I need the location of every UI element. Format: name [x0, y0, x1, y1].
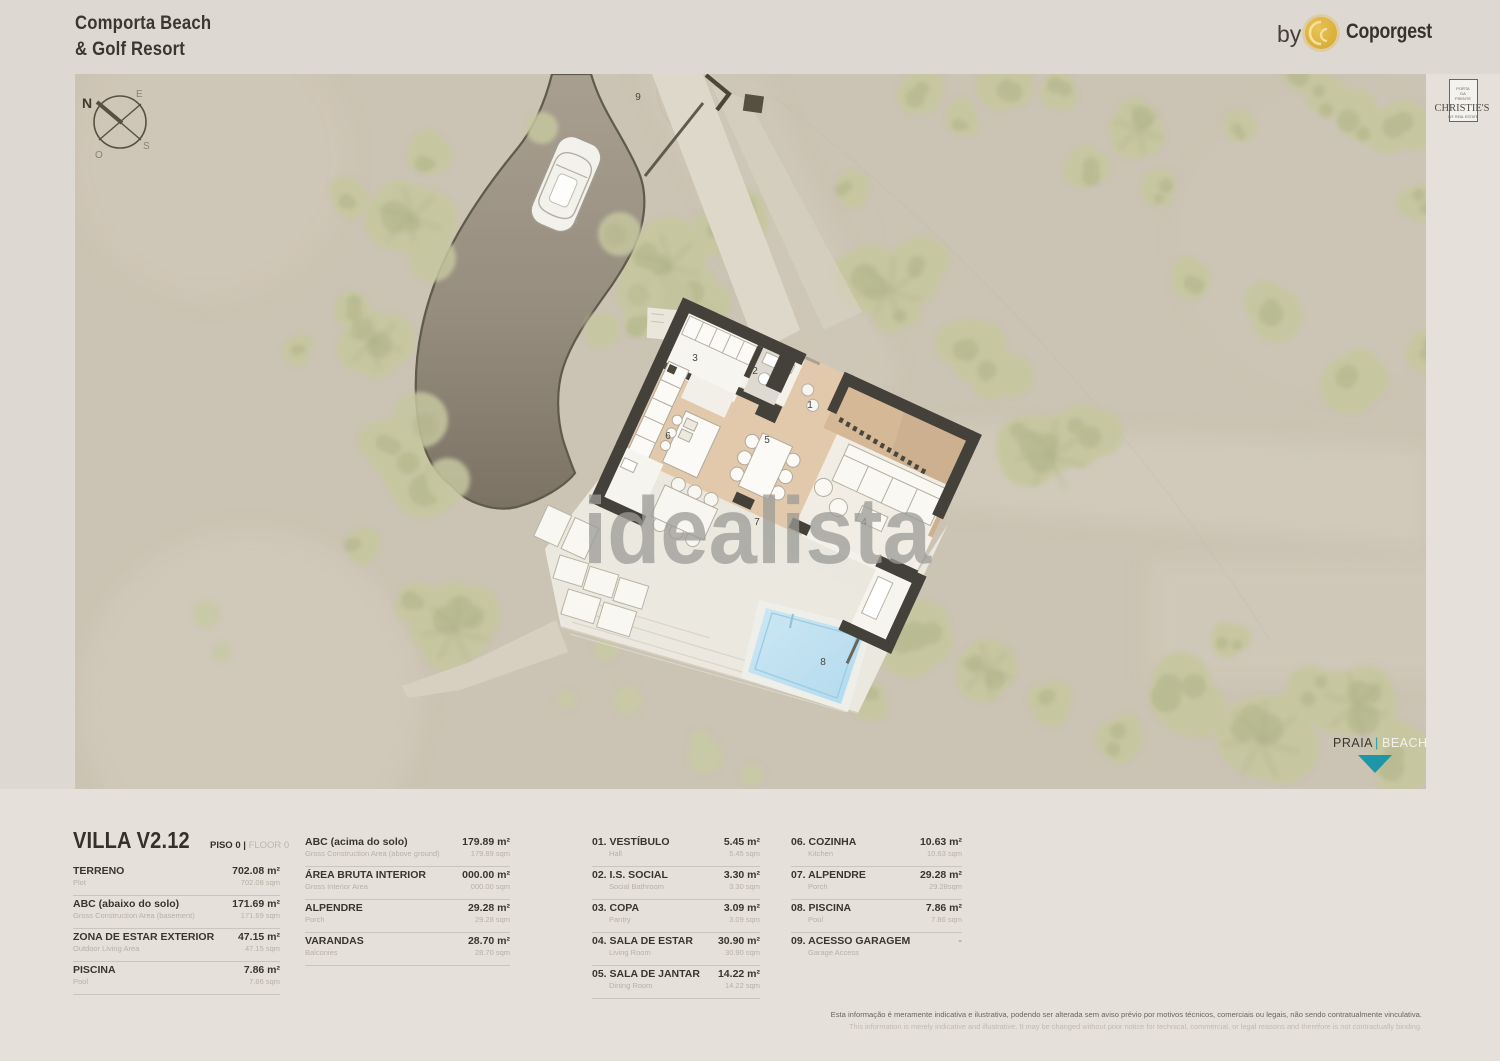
svg-text:|: | — [1375, 736, 1378, 750]
svg-text:CHRISTIE'S: CHRISTIE'S — [1435, 103, 1490, 114]
svg-text:2: 2 — [752, 366, 758, 377]
svg-text:idealista: idealista — [583, 478, 932, 584]
svg-text:1: 1 — [807, 400, 813, 411]
svg-text:E: E — [136, 89, 143, 100]
svg-text:3: 3 — [692, 353, 698, 364]
svg-text:5: 5 — [764, 435, 770, 446]
svg-text:N: N — [82, 95, 92, 111]
svg-text:PRAIA: PRAIA — [1333, 736, 1373, 750]
svg-text:S: S — [143, 141, 150, 152]
svg-text:9: 9 — [635, 92, 641, 103]
svg-text:FRENTE: FRENTE — [1455, 96, 1471, 101]
svg-text:O: O — [95, 150, 103, 161]
svg-text:8: 8 — [820, 657, 826, 668]
svg-text:INT. REAL ESTATE: INT. REAL ESTATE — [1448, 115, 1479, 119]
svg-text:6: 6 — [665, 431, 671, 442]
svg-text:BEACH: BEACH — [1382, 736, 1428, 750]
